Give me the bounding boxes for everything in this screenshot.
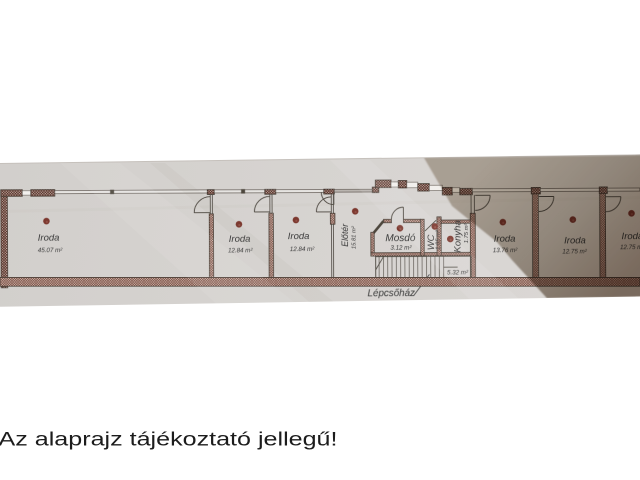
svg-text:3.12 m²: 3.12 m² <box>390 245 412 252</box>
svg-text:Az alaprajz tájékoztató jelleg: Az alaprajz tájékoztató jellegű! <box>0 430 338 451</box>
svg-text:15.81 m²: 15.81 m² <box>351 225 357 249</box>
svg-text:Lépcsőház: Lépcsőház <box>368 288 416 299</box>
svg-text:45.07 m²: 45.07 m² <box>38 247 63 254</box>
svg-text:Előtér: Előtér <box>340 223 350 247</box>
svg-text:1.75 m²: 1.75 m² <box>464 222 470 243</box>
svg-text:Iroda: Iroda <box>288 231 310 242</box>
svg-text:12.84 m²: 12.84 m² <box>290 246 315 253</box>
svg-text:Iroda: Iroda <box>38 233 60 244</box>
